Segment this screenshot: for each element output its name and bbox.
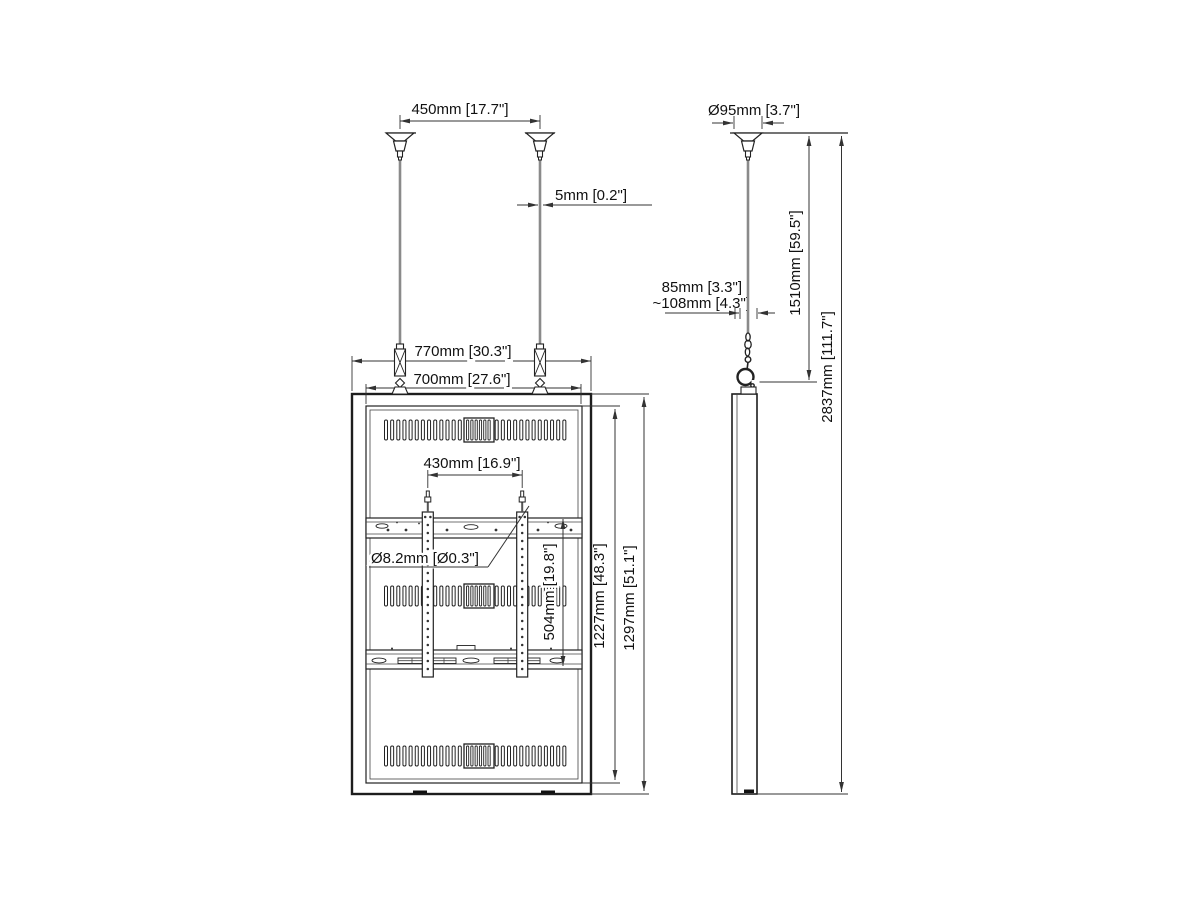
dim-label-overall-height: 2837mm [111.7"] — [819, 311, 836, 423]
technical-drawing-page: 450mm [17.7"] 5mm [0.2"] 770mm [30.3"] 7… — [0, 0, 1200, 900]
s-hook-icon — [738, 369, 754, 385]
dim-label-outer-height: 1297mm [51.1"] — [621, 545, 638, 650]
dim-label-bracket-height: 504mm [19.8"] — [541, 543, 558, 640]
dim-label-bracket-spacing: 430mm [16.9"] — [423, 455, 520, 472]
dim-label-cable-diameter: 5mm [0.2"] — [555, 187, 627, 204]
display-mount-dimension-drawing: 450mm [17.7"] 5mm [0.2"] 770mm [30.3"] 7… — [0, 0, 1200, 900]
mount-rail-top — [366, 518, 582, 538]
panel-side-profile — [732, 394, 757, 794]
dim-label-mount-spacing: 450mm [17.7"] — [411, 101, 508, 118]
side-bottom-mark — [744, 790, 754, 794]
hook-mount-tab — [741, 387, 756, 394]
side-view — [732, 394, 757, 794]
dim-label-mount-diameter: Ø95mm [3.7"] — [708, 102, 800, 119]
bottom-foot-left — [413, 791, 427, 794]
dim-label-overall-depth: ~108mm [4.3"] — [653, 295, 750, 312]
dim-label-outer-width: 770mm [30.3"] — [414, 343, 511, 360]
dim-label-inner-width: 700mm [27.6"] — [413, 371, 510, 388]
chain-and-hook — [738, 333, 760, 394]
dim-label-panel-depth: 85mm [3.3"] — [662, 279, 742, 296]
dim-label-suspension-drop: 1510mm [59.5"] — [787, 210, 804, 315]
bottom-foot-right — [541, 791, 555, 794]
dim-label-inner-height: 1227mm [48.3"] — [591, 543, 608, 648]
dim-label-hole-diameter: Ø8.2mm [Ø0.3"] — [371, 550, 479, 567]
